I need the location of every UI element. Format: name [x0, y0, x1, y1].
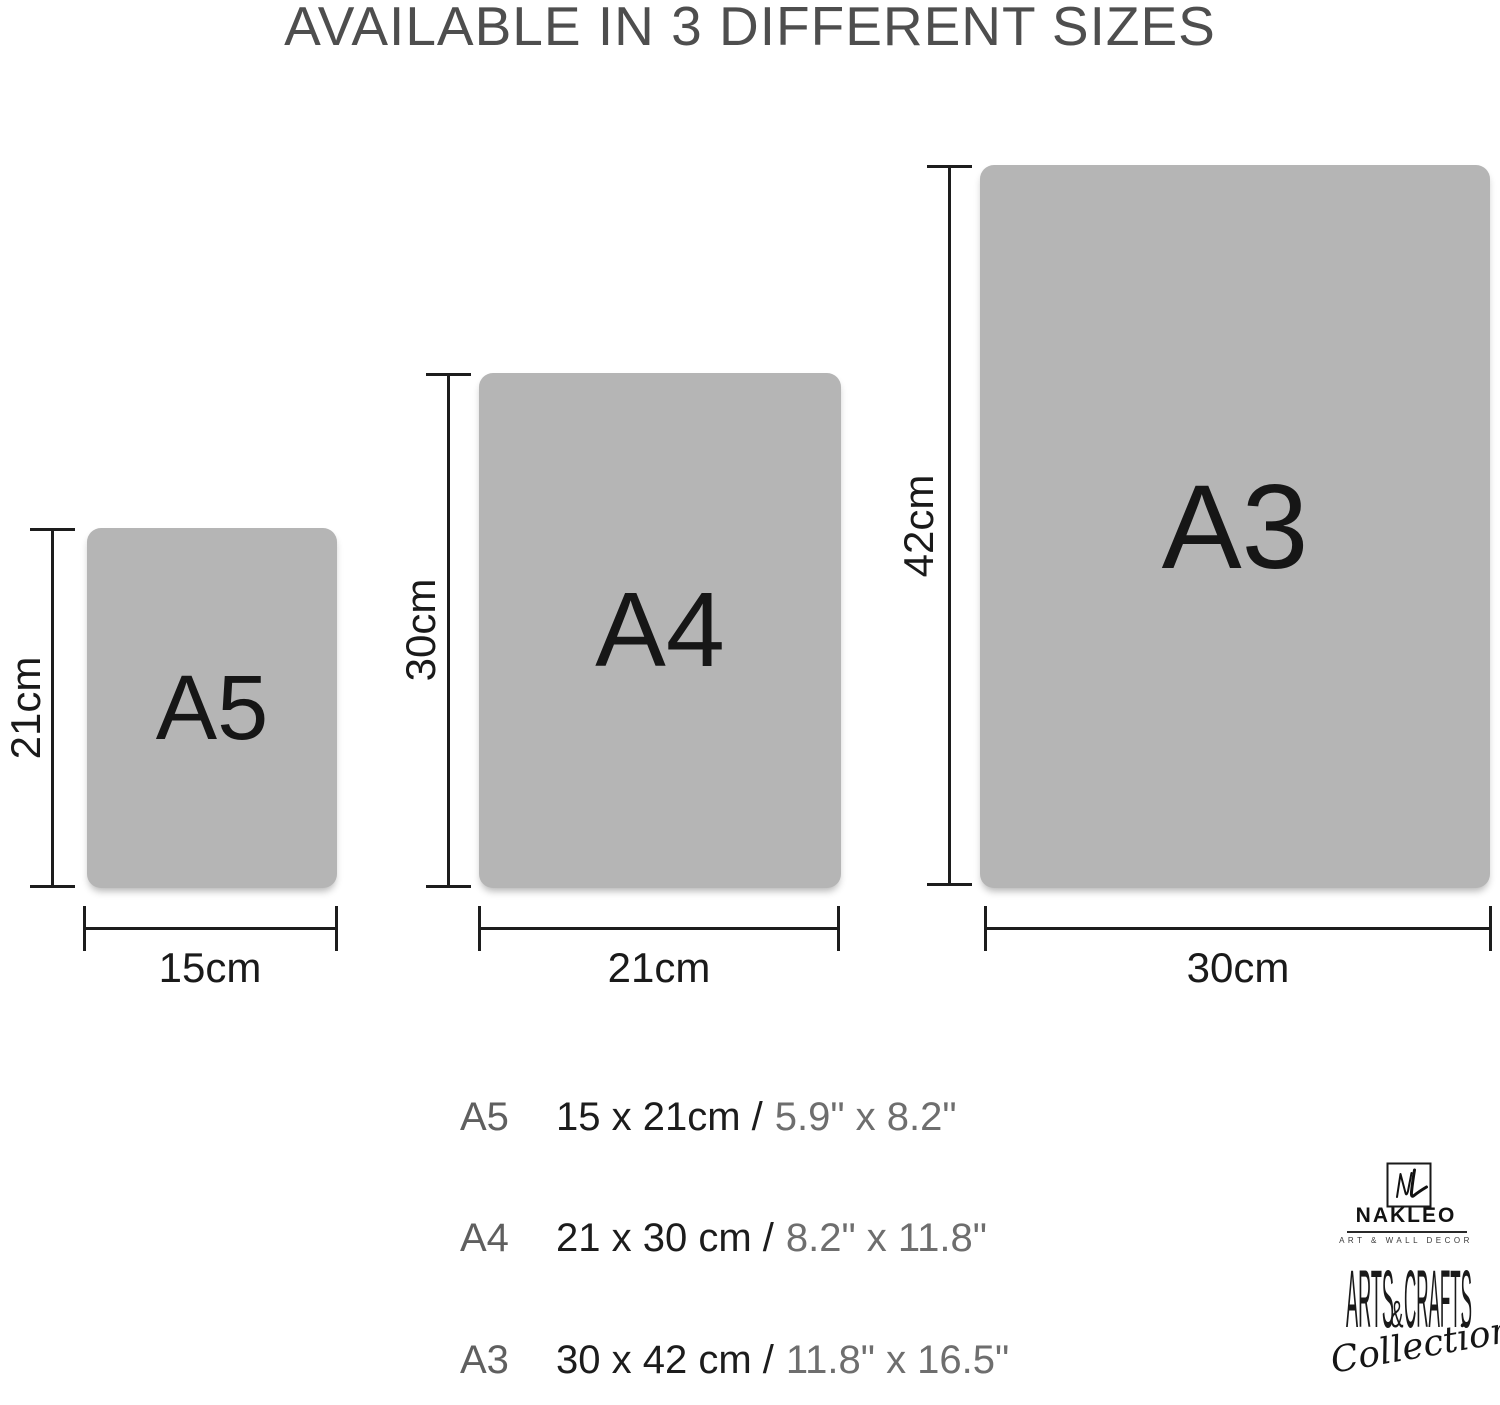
dimension-cap: [426, 885, 471, 888]
a4-width-dimension-line: [478, 927, 840, 930]
dimension-cap: [984, 906, 987, 951]
spec-a5-cm: 15 x 21cm /: [556, 1095, 763, 1140]
dimension-cap: [426, 373, 471, 376]
paper-a4-label: A4: [595, 570, 725, 691]
a5-height-dimension-line: [51, 528, 54, 888]
a5-width-label: 15cm: [159, 944, 262, 992]
dimension-cap: [927, 883, 972, 886]
spec-a4-inch: 8.2" x 11.8": [786, 1216, 987, 1261]
a4-width-label: 21cm: [608, 944, 711, 992]
a3-width-dimension-line: [984, 927, 1492, 930]
paper-a5: A5: [87, 528, 337, 888]
a4-height-dimension-line: [447, 373, 450, 888]
brand-divider: [1347, 1231, 1467, 1233]
dimension-cap: [927, 165, 972, 168]
dimension-cap: [335, 906, 338, 951]
paper-a4: A4: [479, 373, 841, 888]
paper-a5-label: A5: [156, 656, 269, 761]
spec-a5-name: A5: [460, 1095, 556, 1140]
paper-a3: A3: [980, 165, 1490, 888]
spec-row-a3: A3 30 x 42 cm / 11.8" x 16.5": [460, 1338, 1009, 1383]
a5-width-dimension-line: [83, 927, 338, 930]
a3-height-dimension-line: [948, 165, 951, 886]
dimension-cap: [478, 906, 481, 951]
spec-a3-name: A3: [460, 1338, 556, 1383]
dimension-cap: [30, 885, 75, 888]
ampersand-text: &: [1391, 1294, 1404, 1332]
page-title: AVAILABLE IN 3 DIFFERENT SIZES: [0, 0, 1500, 58]
size-chart-infographic: AVAILABLE IN 3 DIFFERENT SIZES A5 21cm 1…: [0, 0, 1500, 1405]
a5-height-label: 21cm: [2, 657, 50, 760]
dimension-cap: [30, 528, 75, 531]
paper-a3-label: A3: [1162, 458, 1309, 596]
dimension-cap: [837, 906, 840, 951]
spec-a3-inch: 11.8" x 16.5": [786, 1338, 1009, 1383]
brand-name: NAKLEO: [1336, 1204, 1476, 1228]
spec-a3-cm: 30 x 42 cm /: [556, 1338, 774, 1383]
nl-monogram-icon: [1386, 1162, 1432, 1208]
a3-width-label: 30cm: [1187, 944, 1290, 992]
spec-row-a5: A5 15 x 21cm / 5.9" x 8.2": [460, 1095, 957, 1140]
a3-height-label: 42cm: [895, 475, 943, 578]
spec-row-a4: A4 21 x 30 cm / 8.2" x 11.8": [460, 1216, 987, 1261]
arts-text: ARTS: [1346, 1266, 1394, 1332]
spec-a4-cm: 21 x 30 cm /: [556, 1216, 774, 1261]
a4-height-label: 30cm: [397, 579, 445, 682]
spec-a4-name: A4: [460, 1216, 556, 1261]
brand-tagline: ART & WALL DECOR: [1326, 1236, 1486, 1245]
spec-a5-inch: 5.9" x 8.2": [775, 1095, 957, 1140]
dimension-cap: [83, 906, 86, 951]
dimension-cap: [1489, 906, 1492, 951]
